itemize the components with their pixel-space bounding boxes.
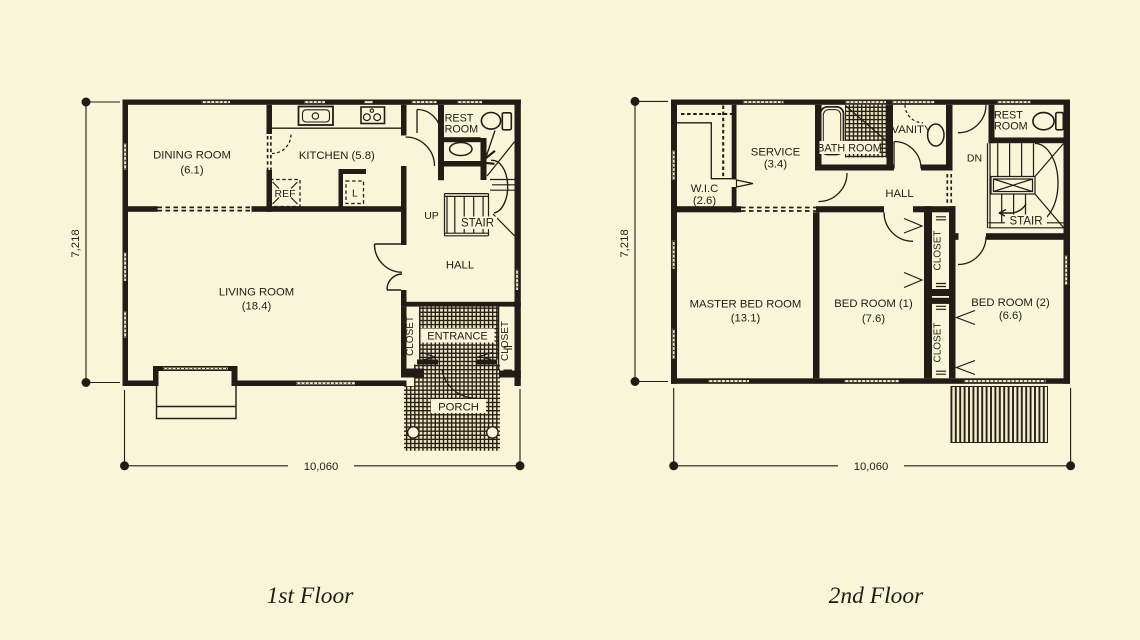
svg-text:ROOM: ROOM — [994, 121, 1028, 133]
svg-text:2nd Floor: 2nd Floor — [829, 583, 925, 609]
svg-text:7,218: 7,218 — [619, 229, 631, 257]
svg-text:L: L — [352, 188, 358, 200]
svg-text:PORCH: PORCH — [438, 402, 479, 414]
svg-text:(2.6): (2.6) — [693, 195, 716, 207]
svg-text:(7.6): (7.6) — [862, 313, 885, 325]
svg-text:BED ROOM (2): BED ROOM (2) — [971, 297, 1050, 309]
svg-text:10,060: 10,060 — [854, 461, 889, 473]
svg-text:HALL: HALL — [885, 188, 913, 200]
svg-text:HALL: HALL — [446, 260, 474, 272]
svg-text:STAIR: STAIR — [461, 218, 494, 230]
svg-text:7,218: 7,218 — [70, 229, 82, 257]
svg-text:REF: REF — [275, 188, 296, 200]
svg-text:BATH ROOM: BATH ROOM — [817, 143, 882, 155]
svg-text:W.I.C: W.I.C — [691, 183, 719, 195]
svg-text:STAIR: STAIR — [1009, 216, 1042, 228]
svg-text:10,060: 10,060 — [304, 461, 339, 473]
svg-text:UP: UP — [424, 210, 439, 222]
svg-text:(6.1): (6.1) — [180, 165, 203, 177]
svg-text:1st Floor: 1st Floor — [267, 583, 355, 609]
svg-text:BED ROOM (1): BED ROOM (1) — [834, 298, 913, 310]
svg-text:LIVING ROOM: LIVING ROOM — [219, 287, 294, 299]
svg-text:SERVICE: SERVICE — [751, 147, 801, 159]
svg-text:(18.4): (18.4) — [242, 301, 272, 313]
svg-text:DN: DN — [967, 153, 982, 165]
svg-text:(13.1): (13.1) — [731, 313, 761, 325]
svg-text:ROOM: ROOM — [445, 124, 479, 136]
svg-text:(3.4): (3.4) — [764, 159, 787, 171]
svg-text:CLOSET: CLOSET — [933, 230, 944, 270]
svg-text:CLOSET: CLOSET — [500, 321, 511, 361]
svg-text:CLOSET: CLOSET — [933, 322, 944, 362]
svg-text:VANITY: VANITY — [892, 124, 932, 136]
svg-text:ENTRANCE: ENTRANCE — [427, 331, 488, 343]
svg-text:MASTER BED ROOM: MASTER BED ROOM — [690, 299, 802, 311]
svg-text:DINING ROOM: DINING ROOM — [153, 150, 231, 162]
svg-text:KITCHEN (5.8): KITCHEN (5.8) — [299, 150, 375, 162]
svg-text:(6.6): (6.6) — [999, 310, 1022, 322]
svg-text:CLOSET: CLOSET — [405, 316, 416, 356]
